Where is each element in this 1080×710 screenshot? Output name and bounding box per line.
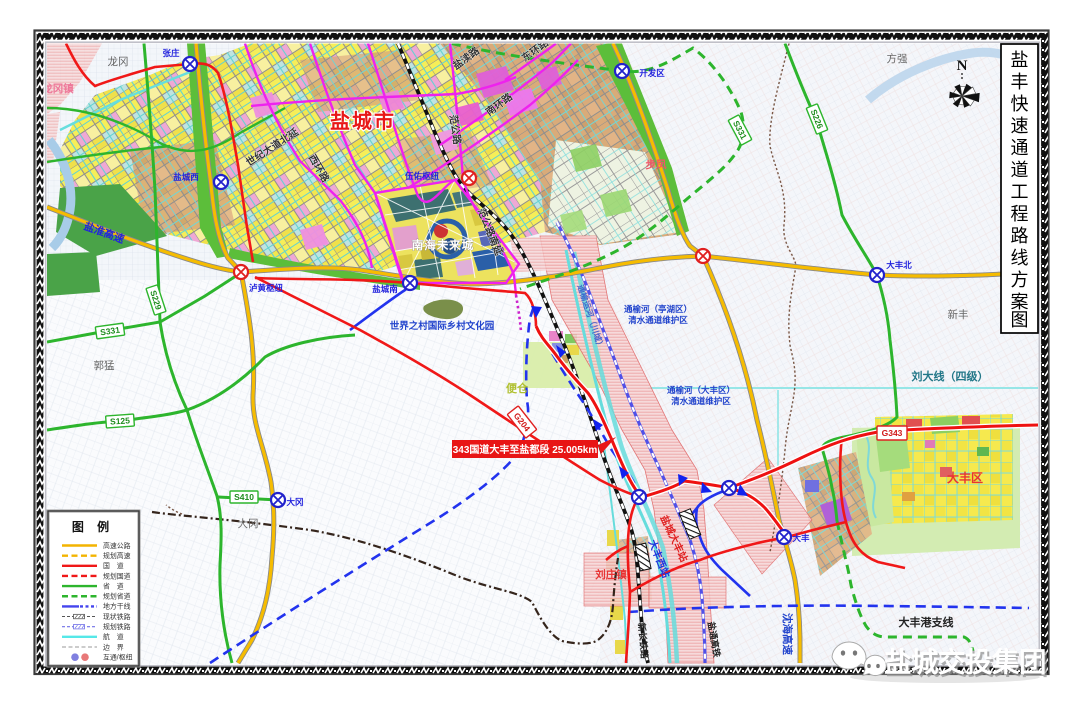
svg-text:地方干线: 地方干线: [103, 602, 131, 611]
svg-text:盐城南: 盐城南: [372, 284, 398, 294]
svg-text:大丰区: 大丰区: [947, 470, 983, 485]
svg-text:规划省道: 规划省道: [103, 592, 131, 601]
svg-text:沈海高速: 沈海高速: [781, 613, 794, 655]
svg-text:S125: S125: [110, 415, 131, 426]
svg-text:郭猛: 郭猛: [94, 359, 115, 372]
svg-text:大冈: 大冈: [238, 517, 259, 530]
svg-text:清水通道维护区: 清水通道维护区: [671, 396, 731, 406]
svg-text:方: 方: [1011, 270, 1029, 290]
svg-text:刘大线（四级）: 刘大线（四级）: [912, 369, 989, 383]
svg-text:龙冈: 龙冈: [108, 55, 129, 68]
svg-text:省 道: 省 道: [103, 581, 124, 590]
svg-text:新丰: 新丰: [948, 308, 969, 321]
svg-text:盐城西: 盐城西: [173, 172, 199, 182]
svg-text:高速公路: 高速公路: [103, 541, 131, 550]
svg-text:规划铁路: 规划铁路: [103, 622, 131, 631]
svg-text:大丰: 大丰: [792, 533, 810, 543]
svg-text:伍佑枢纽: 伍佑枢纽: [404, 171, 440, 181]
svg-text:国 道: 国 道: [103, 561, 124, 570]
svg-text:N: N: [957, 58, 968, 74]
svg-text:通: 通: [1011, 138, 1029, 158]
svg-text:G343: G343: [882, 428, 903, 438]
svg-text:路: 路: [1011, 226, 1029, 246]
svg-text:通榆河（亭湖区）: 通榆河（亭湖区）: [624, 304, 692, 314]
svg-text:盐城交投集团: 盐城交投集团: [884, 647, 1046, 678]
svg-text:图: 图: [1011, 310, 1029, 330]
svg-text:工: 工: [1011, 182, 1029, 202]
svg-text:开发区: 开发区: [639, 68, 665, 78]
svg-text:快: 快: [1011, 94, 1029, 114]
svg-text:道: 道: [1011, 160, 1029, 180]
svg-text:互通/枢纽: 互通/枢纽: [103, 652, 133, 661]
svg-text:大丰北: 大丰北: [886, 260, 912, 270]
svg-text:南海未来城: 南海未来城: [412, 238, 475, 252]
svg-text:盐: 盐: [1011, 50, 1029, 70]
svg-text:丰: 丰: [1011, 72, 1029, 92]
svg-text:步凤: 步凤: [646, 158, 667, 171]
svg-text:速: 速: [1011, 116, 1029, 136]
svg-text:S410: S410: [234, 492, 254, 502]
svg-text:程: 程: [1011, 204, 1029, 224]
svg-text:盐城市: 盐城市: [330, 109, 396, 133]
svg-text:便仓: 便仓: [506, 381, 529, 395]
svg-text:现状铁路: 现状铁路: [103, 612, 131, 621]
svg-text:刘庄镇: 刘庄镇: [595, 568, 627, 581]
svg-text:边 界: 边 界: [103, 642, 124, 651]
svg-text:泸黄枢纽: 泸黄枢纽: [249, 283, 284, 293]
svg-text:大冈: 大冈: [286, 497, 303, 507]
svg-text:案: 案: [1011, 292, 1029, 312]
svg-text:图 例: 图 例: [72, 519, 114, 534]
svg-text:清水通道维护区: 清水通道维护区: [628, 315, 688, 325]
svg-text:大丰港支线: 大丰港支线: [899, 615, 954, 629]
svg-text:方强: 方强: [887, 52, 908, 65]
svg-text:规划国道: 规划国道: [103, 571, 131, 580]
svg-text:通榆河（大丰区）: 通榆河（大丰区）: [667, 385, 735, 395]
svg-text:世界之村国际乡村文化园: 世界之村国际乡村文化园: [390, 320, 495, 332]
svg-text:航 道: 航 道: [103, 632, 124, 641]
svg-text:343国道大丰至盐都段 25.005km: 343国道大丰至盐都段 25.005km: [453, 443, 598, 456]
svg-text:张庄: 张庄: [162, 48, 180, 58]
svg-text:规划高速: 规划高速: [103, 551, 131, 560]
svg-text:线: 线: [1011, 248, 1029, 268]
